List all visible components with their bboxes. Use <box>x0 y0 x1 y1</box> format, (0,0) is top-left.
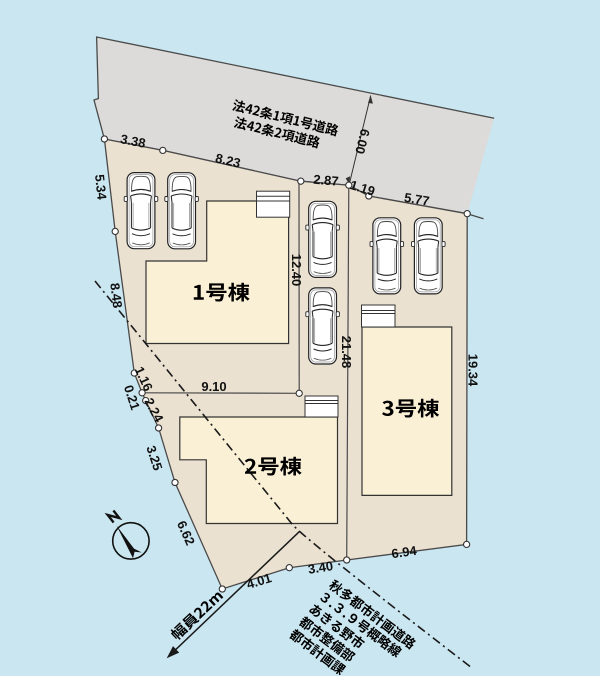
svg-text:2.87: 2.87 <box>313 172 340 189</box>
svg-text:12.40: 12.40 <box>289 254 304 287</box>
svg-text:21.48: 21.48 <box>339 336 354 369</box>
svg-text:19.34: 19.34 <box>466 354 481 387</box>
svg-text:5.34: 5.34 <box>92 174 110 201</box>
svg-text:8.48: 8.48 <box>107 282 125 309</box>
svg-text:9.10: 9.10 <box>201 379 226 394</box>
